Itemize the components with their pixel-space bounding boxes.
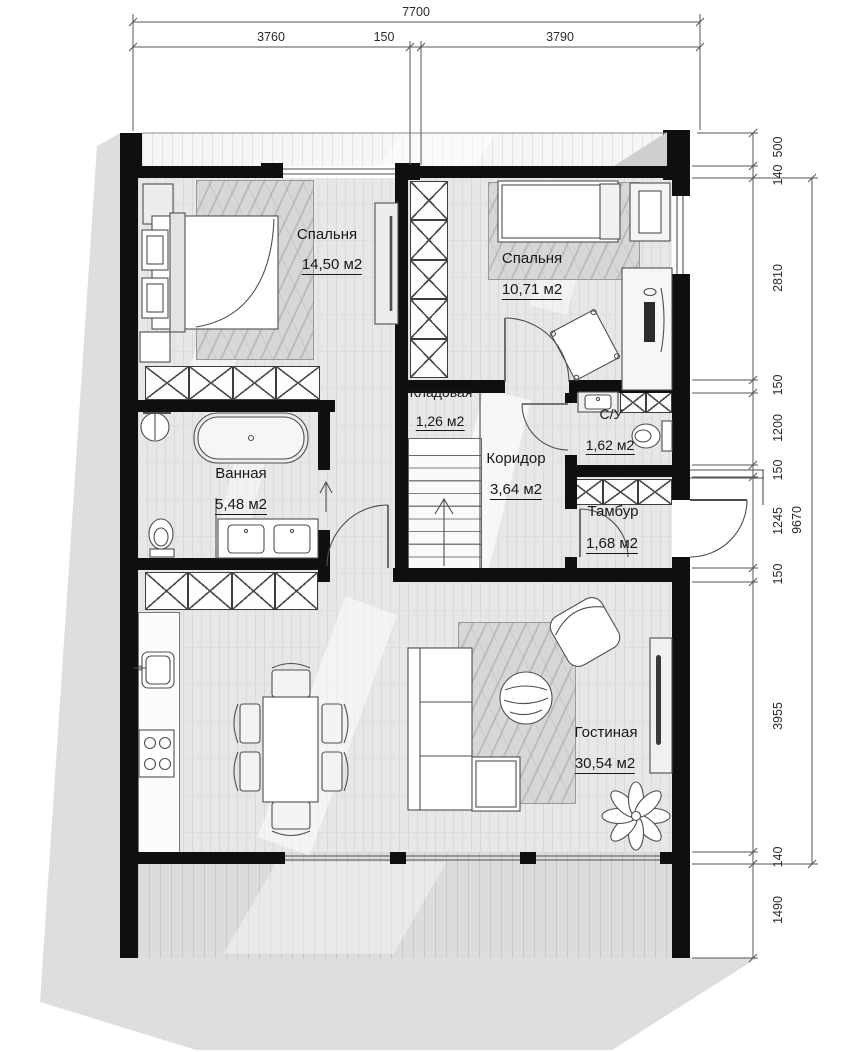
wall-wc-top (569, 380, 672, 393)
wardrobe-cell (410, 220, 448, 259)
staircase (408, 455, 482, 570)
wardrobe-cell (620, 392, 646, 413)
wall-bath-right-lower (318, 530, 330, 582)
room-area-bedroom2: 10,71 м2 (502, 281, 562, 298)
roof-overhang-strip (142, 133, 665, 166)
dim-right-140a: 140 (771, 140, 785, 210)
room-label-bedroom1: Спальня (297, 226, 357, 243)
wall-bath-bottom (138, 558, 330, 570)
wardrobe-cell (233, 366, 277, 400)
wall-pier (261, 163, 283, 178)
wall-right-outer-upper (672, 130, 690, 500)
wall-left-outer (120, 133, 138, 958)
wardrobe-cell (638, 479, 672, 505)
dim-top-3760: 3760 (257, 30, 285, 44)
room-area-living: 30,54 м2 (575, 755, 635, 772)
dim-top-3790: 3790 (546, 30, 574, 44)
wardrobe-tambour (569, 479, 672, 505)
wardrobe-cell (232, 572, 275, 610)
wall-wc-bottom (565, 465, 672, 477)
wardrobe-cell (276, 366, 320, 400)
wardrobe-cell (189, 366, 233, 400)
room-label-storage: Кладовая (410, 384, 473, 401)
dim-right-3955: 3955 (771, 681, 785, 751)
kitchen-counter (138, 612, 180, 854)
wall-right-outer-lower (672, 557, 690, 958)
dim-top-overall: 7700 (402, 5, 430, 19)
wardrobe-cell (603, 479, 637, 505)
dim-right-overall: 9670 (790, 485, 804, 555)
wardrobe-cell (188, 572, 231, 610)
dim-right-150c: 150 (771, 539, 785, 609)
wardrobe-cell (145, 572, 188, 610)
room-label-living: Гостиная (575, 724, 638, 741)
dim-top-150: 150 (374, 30, 395, 44)
wall-top-bedroom1 (138, 166, 263, 178)
room-area-bathroom: 5,48 м2 (215, 496, 267, 513)
wall-bedroom1-bottom (138, 400, 335, 412)
room-area-wc: 1,62 м2 (586, 437, 635, 454)
room-label-tambour: Тамбур (588, 503, 639, 520)
room-label-corridor: Коридор (486, 450, 545, 467)
room-label-wc: С/У (600, 406, 623, 423)
wardrobe-cell (646, 392, 672, 413)
living-room-rug (458, 622, 576, 804)
bedroom1-rug (196, 180, 314, 360)
dim-right-1490: 1490 (771, 875, 785, 945)
room-label-bathroom: Ванная (215, 465, 266, 482)
wardrobe-cell (410, 339, 448, 378)
wall-tambour-left-upper (565, 477, 577, 509)
wardrobe-kitchen-wall (145, 572, 318, 610)
room-area-storage: 1,26 м2 (416, 413, 465, 430)
wall-bottom-corner (660, 852, 690, 864)
wardrobe-cell (410, 181, 448, 220)
wall-wc-left-stub (565, 393, 577, 403)
wardrobe-bedroom1 (145, 366, 320, 400)
wall-stair-left (395, 166, 408, 568)
room-area-bedroom1: 14,50 м2 (302, 256, 362, 273)
wall-bottom-kitchen (138, 852, 285, 864)
dim-right-2810: 2810 (771, 243, 785, 313)
wardrobe-bedroom2 (410, 181, 448, 378)
wall-living-top (393, 568, 672, 582)
wardrobe-cell (410, 260, 448, 299)
wardrobe-cell (145, 366, 189, 400)
wall-bottom-pier (390, 852, 406, 864)
wardrobe-cell (410, 299, 448, 338)
room-area-tambour: 1,68 м2 (586, 535, 638, 552)
wall-top-bedroom2 (415, 166, 668, 178)
wall-bottom-pier (520, 852, 536, 864)
cabinet-wc (620, 392, 672, 413)
wardrobe-cell (275, 572, 318, 610)
floor-plan: Спальня 14,50 м2 Спальня 10,71 м2 Кладов… (0, 0, 858, 1052)
room-area-corridor: 3,64 м2 (490, 481, 542, 498)
wall-bath-right-upper (318, 412, 330, 470)
room-label-bedroom2: Спальня (502, 250, 562, 267)
terrace-deck (138, 852, 672, 958)
